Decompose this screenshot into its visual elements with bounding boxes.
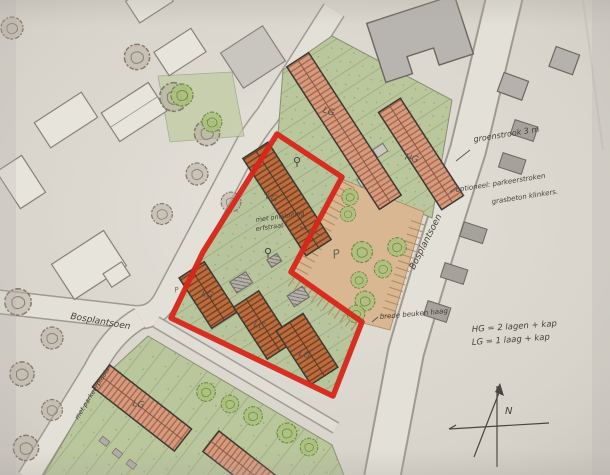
edge-shade-top xyxy=(0,0,610,26)
tree-green-icon xyxy=(351,272,368,289)
edge-shade-bottom xyxy=(0,449,610,475)
site-plan-sketch: Bosplantsoen Bosplantsoen groenstrook 3 … xyxy=(0,0,610,475)
tree-green-icon xyxy=(221,395,239,413)
tree-green-icon xyxy=(277,423,297,443)
tree-green-icon xyxy=(197,383,216,402)
tree-green-icon xyxy=(388,238,407,257)
tree-icon xyxy=(124,44,149,69)
tree-icon xyxy=(42,400,63,421)
tree-icon xyxy=(186,163,208,185)
tree-icon xyxy=(152,204,173,225)
tree-green-icon xyxy=(342,189,359,206)
plan-canvas: Bosplantsoen Bosplantsoen groenstrook 3 … xyxy=(0,0,610,475)
north-letter: N xyxy=(505,406,513,417)
edge-shade-left xyxy=(0,0,16,475)
tree-green-icon xyxy=(171,84,193,106)
building-label: LG xyxy=(132,399,146,411)
tree-green-icon xyxy=(202,112,222,132)
edge-shade-right xyxy=(592,0,610,475)
tree-green-icon xyxy=(244,407,263,426)
tree-green-icon xyxy=(374,260,392,278)
tree-green-icon xyxy=(352,242,373,263)
tree-green-icon xyxy=(340,206,355,221)
tree-icon xyxy=(41,327,63,349)
